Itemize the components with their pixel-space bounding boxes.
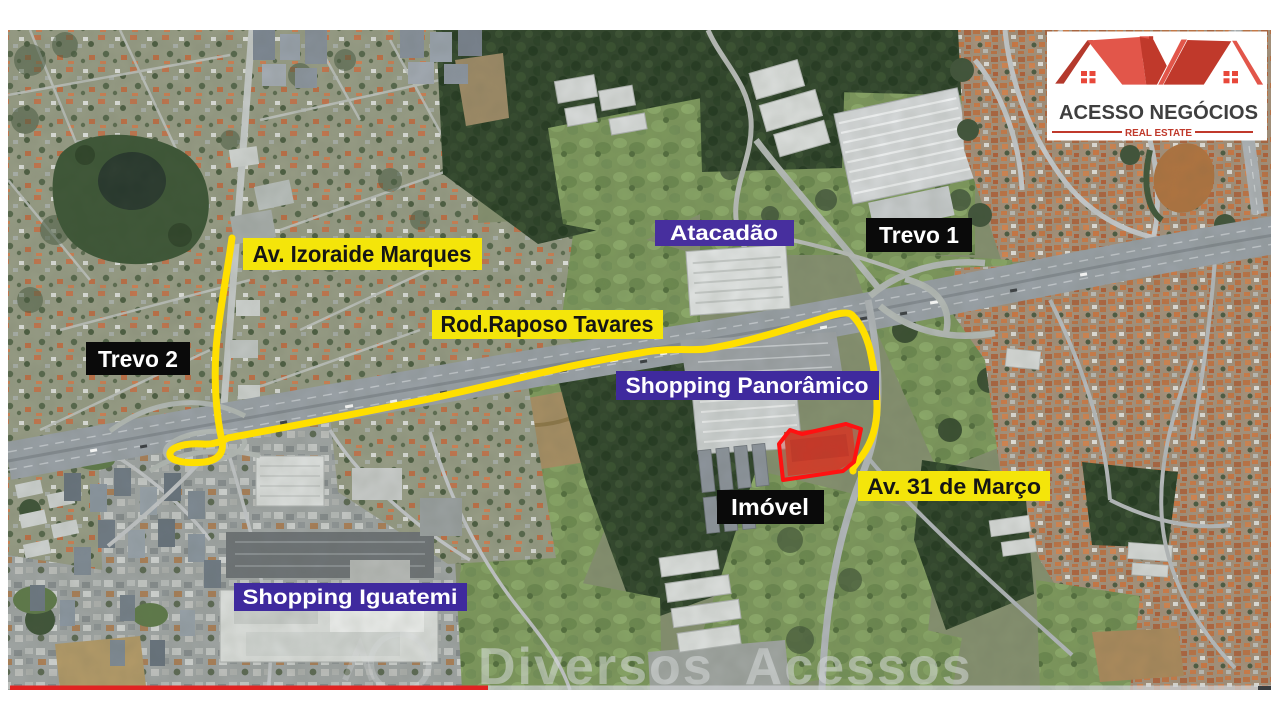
svg-text:Shopping Panorâmico: Shopping Panorâmico <box>626 373 869 398</box>
svg-text:ACESSO NEGÓCIOS: ACESSO NEGÓCIOS <box>1059 100 1258 124</box>
svg-text:Trevo 1: Trevo 1 <box>879 222 959 248</box>
svg-text:Atacadão: Atacadão <box>670 222 778 245</box>
svg-text:Trevo 2: Trevo 2 <box>98 346 178 372</box>
svg-text:Av. 31 de Março: Av. 31 de Março <box>867 474 1041 499</box>
svg-text:Shopping Iguatemi: Shopping Iguatemi <box>243 586 458 609</box>
svg-text:Av. Izoraide Marques: Av. Izoraide Marques <box>253 241 472 267</box>
svg-text:Imóvel: Imóvel <box>731 494 809 520</box>
svg-text:Rod.Raposo Tavares: Rod.Raposo Tavares <box>441 311 654 337</box>
svg-text:REAL ESTATE: REAL ESTATE <box>1125 127 1192 139</box>
